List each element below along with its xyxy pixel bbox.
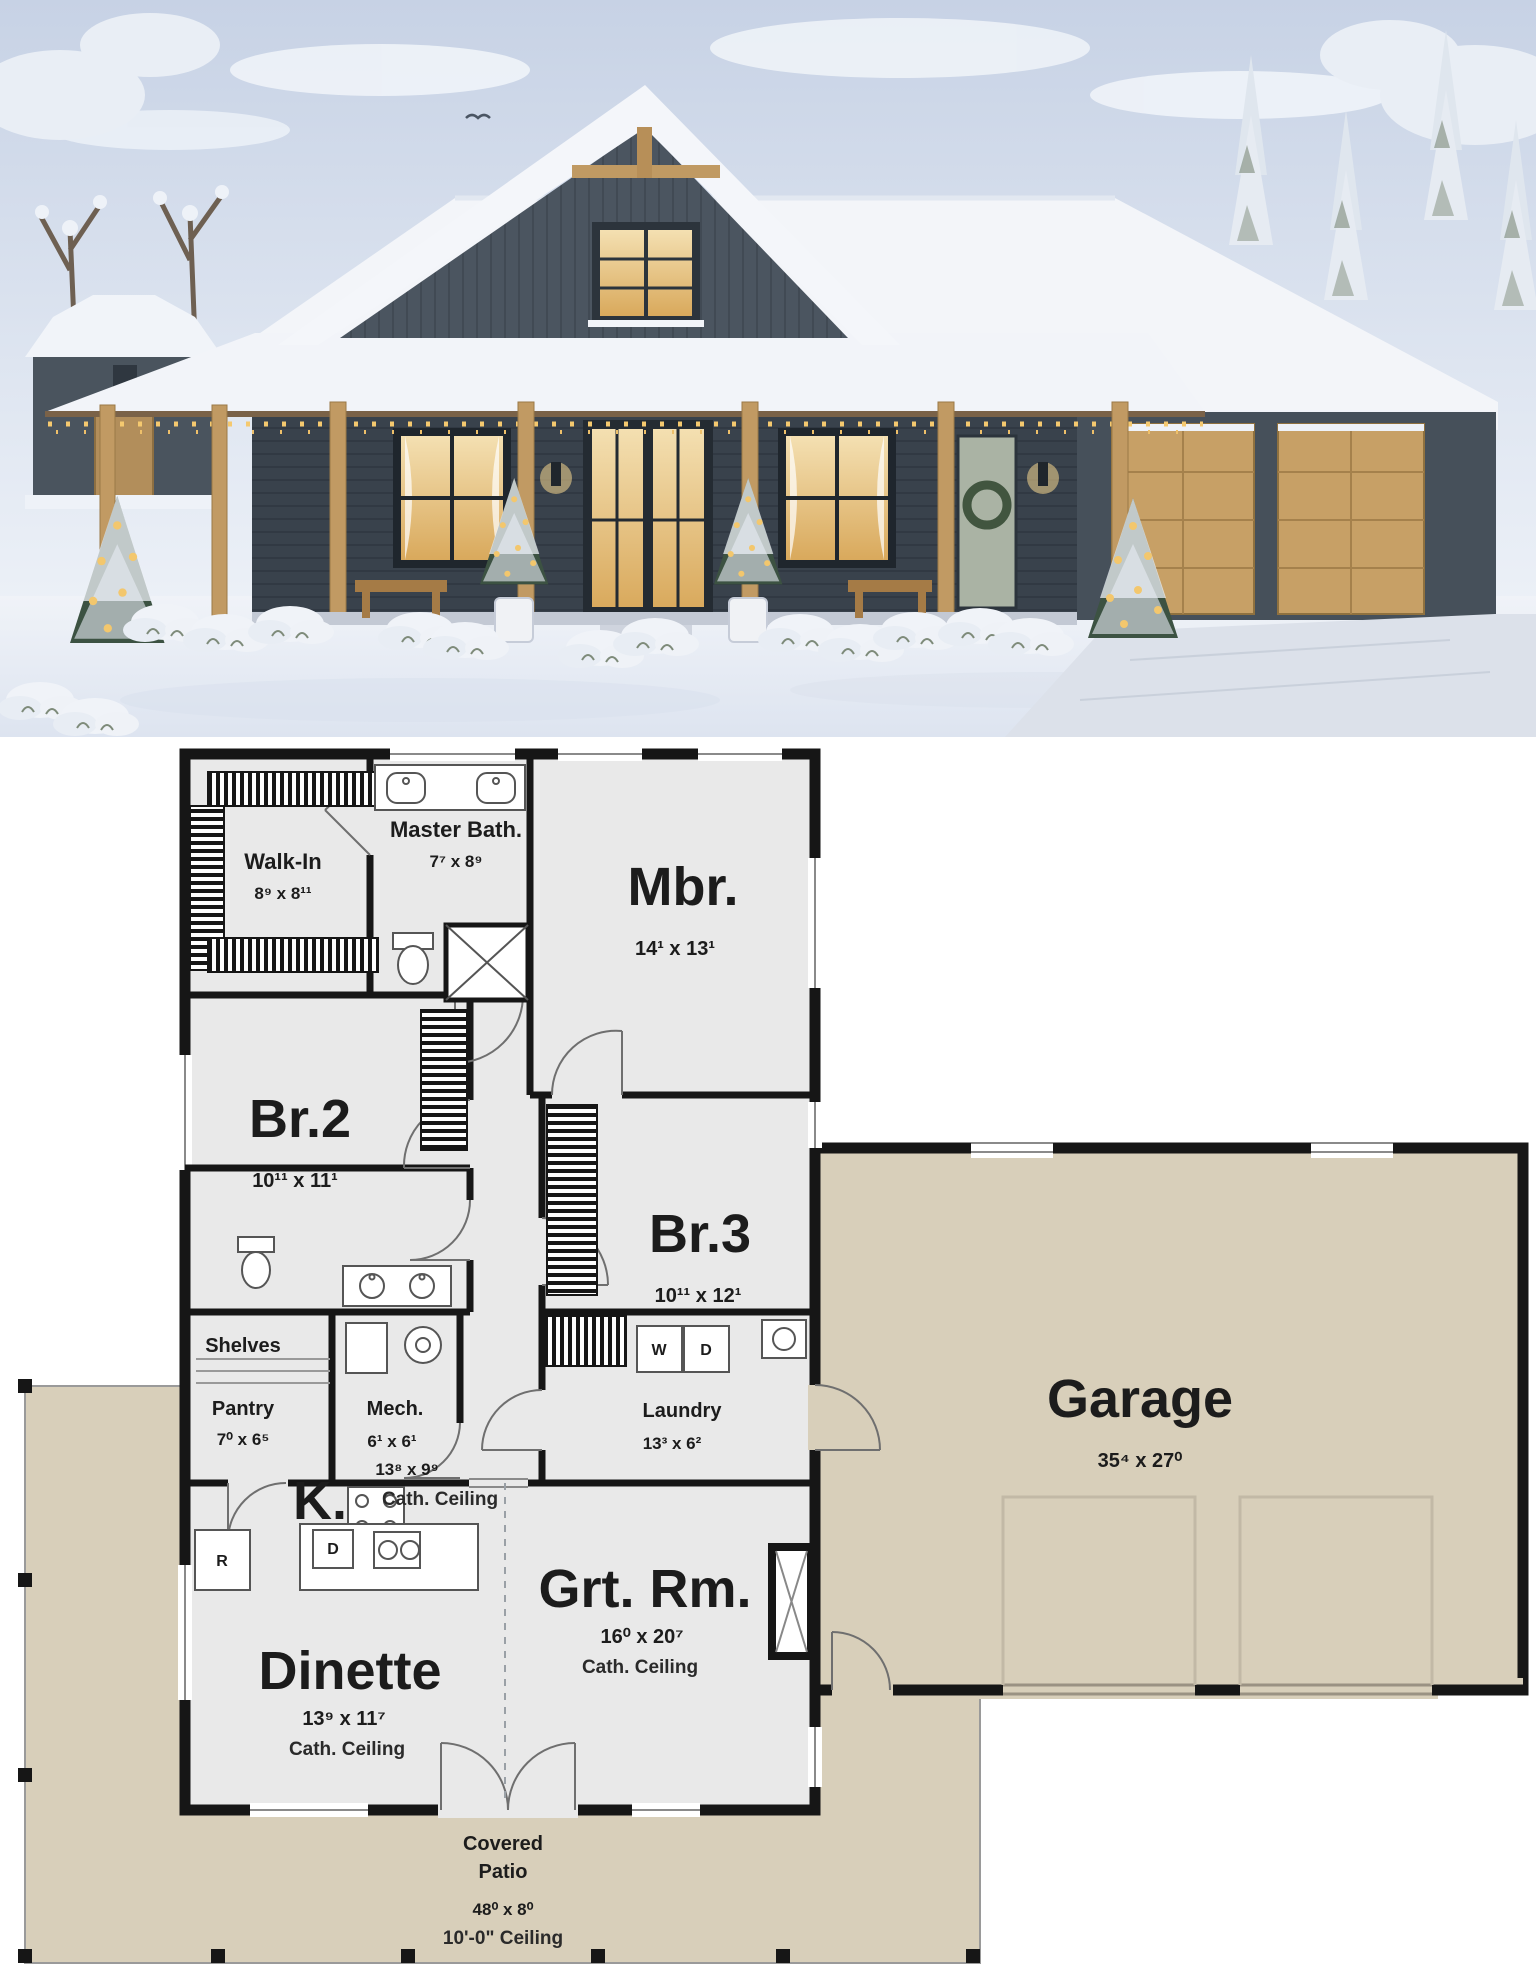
patio-label-2: Patio xyxy=(479,1861,528,1883)
kitchen-dims: 13⁸ x 9⁹ xyxy=(375,1460,438,1479)
pantry-dims: 7⁰ x 6⁵ xyxy=(217,1430,270,1449)
grt-rm-label: Grt. Rm. xyxy=(538,1559,751,1619)
main-house: W D D R xyxy=(178,746,880,1818)
br2-dims: 10¹¹ x 11¹ xyxy=(252,1170,338,1192)
patio-ceiling: 10'-0" Ceiling xyxy=(443,1928,563,1949)
garage-label: Garage xyxy=(1047,1369,1233,1429)
br3-dims: 10¹¹ x 12¹ xyxy=(655,1285,742,1307)
washer-label: W xyxy=(651,1342,667,1359)
pantry-label: Pantry xyxy=(212,1398,275,1420)
br2-label: Br.2 xyxy=(249,1089,351,1149)
kitchen-ceiling: Cath. Ceiling xyxy=(382,1489,498,1510)
kitchen-label: K. xyxy=(293,1471,347,1531)
gable-post xyxy=(637,127,652,178)
french-doors xyxy=(583,420,713,616)
walkin-dims: 8⁹ x 8¹¹ xyxy=(254,884,312,903)
walkin-label: Walk-In xyxy=(244,849,321,874)
snow-shadow xyxy=(120,678,720,722)
mech-label: Mech. xyxy=(367,1398,424,1420)
dinette-dims: 13⁹ x 11⁷ xyxy=(302,1708,385,1730)
patio-label-1: Covered xyxy=(463,1833,543,1855)
dinette-ceiling: Cath. Ceiling xyxy=(289,1739,405,1760)
grt-rm-dims: 16⁰ x 20⁷ xyxy=(601,1626,684,1648)
master-bath-label: Master Bath. xyxy=(390,817,522,842)
dryer-label: D xyxy=(700,1342,712,1359)
garage: Garage 35⁴ x 27⁰ xyxy=(805,1136,1523,1699)
patio-dims: 48⁰ x 8⁰ xyxy=(473,1900,534,1919)
side-door xyxy=(958,436,1016,608)
garage-dims: 35⁴ x 27⁰ xyxy=(1098,1450,1183,1472)
garage-door xyxy=(1278,424,1424,614)
dishwasher-label: D xyxy=(327,1541,339,1558)
shelves-label: Shelves xyxy=(205,1335,281,1357)
mech-dims: 6¹ x 6¹ xyxy=(367,1432,416,1451)
exterior-photo xyxy=(0,0,1536,737)
laundry-label: Laundry xyxy=(643,1400,723,1422)
refrigerator-label: R xyxy=(216,1553,228,1570)
planter-pot xyxy=(495,598,533,642)
grt-rm-ceiling: Cath. Ceiling xyxy=(582,1657,698,1678)
gable-window xyxy=(588,222,704,327)
master-bath-dims: 7⁷ x 8⁹ xyxy=(430,852,483,871)
dinette-label: Dinette xyxy=(258,1641,441,1701)
fireplace xyxy=(768,1543,815,1660)
laundry-dims: 13³ x 6² xyxy=(643,1434,702,1453)
garage-door-openings xyxy=(805,1681,1523,1699)
br3-label: Br.3 xyxy=(649,1204,751,1264)
mbr-label: Mbr. xyxy=(627,857,738,917)
screenshot: Garage 35⁴ x 27⁰ xyxy=(0,0,1536,1984)
floor-plan: Garage 35⁴ x 27⁰ xyxy=(0,737,1536,1984)
mbr-dims: 14¹ x 13¹ xyxy=(635,938,715,960)
